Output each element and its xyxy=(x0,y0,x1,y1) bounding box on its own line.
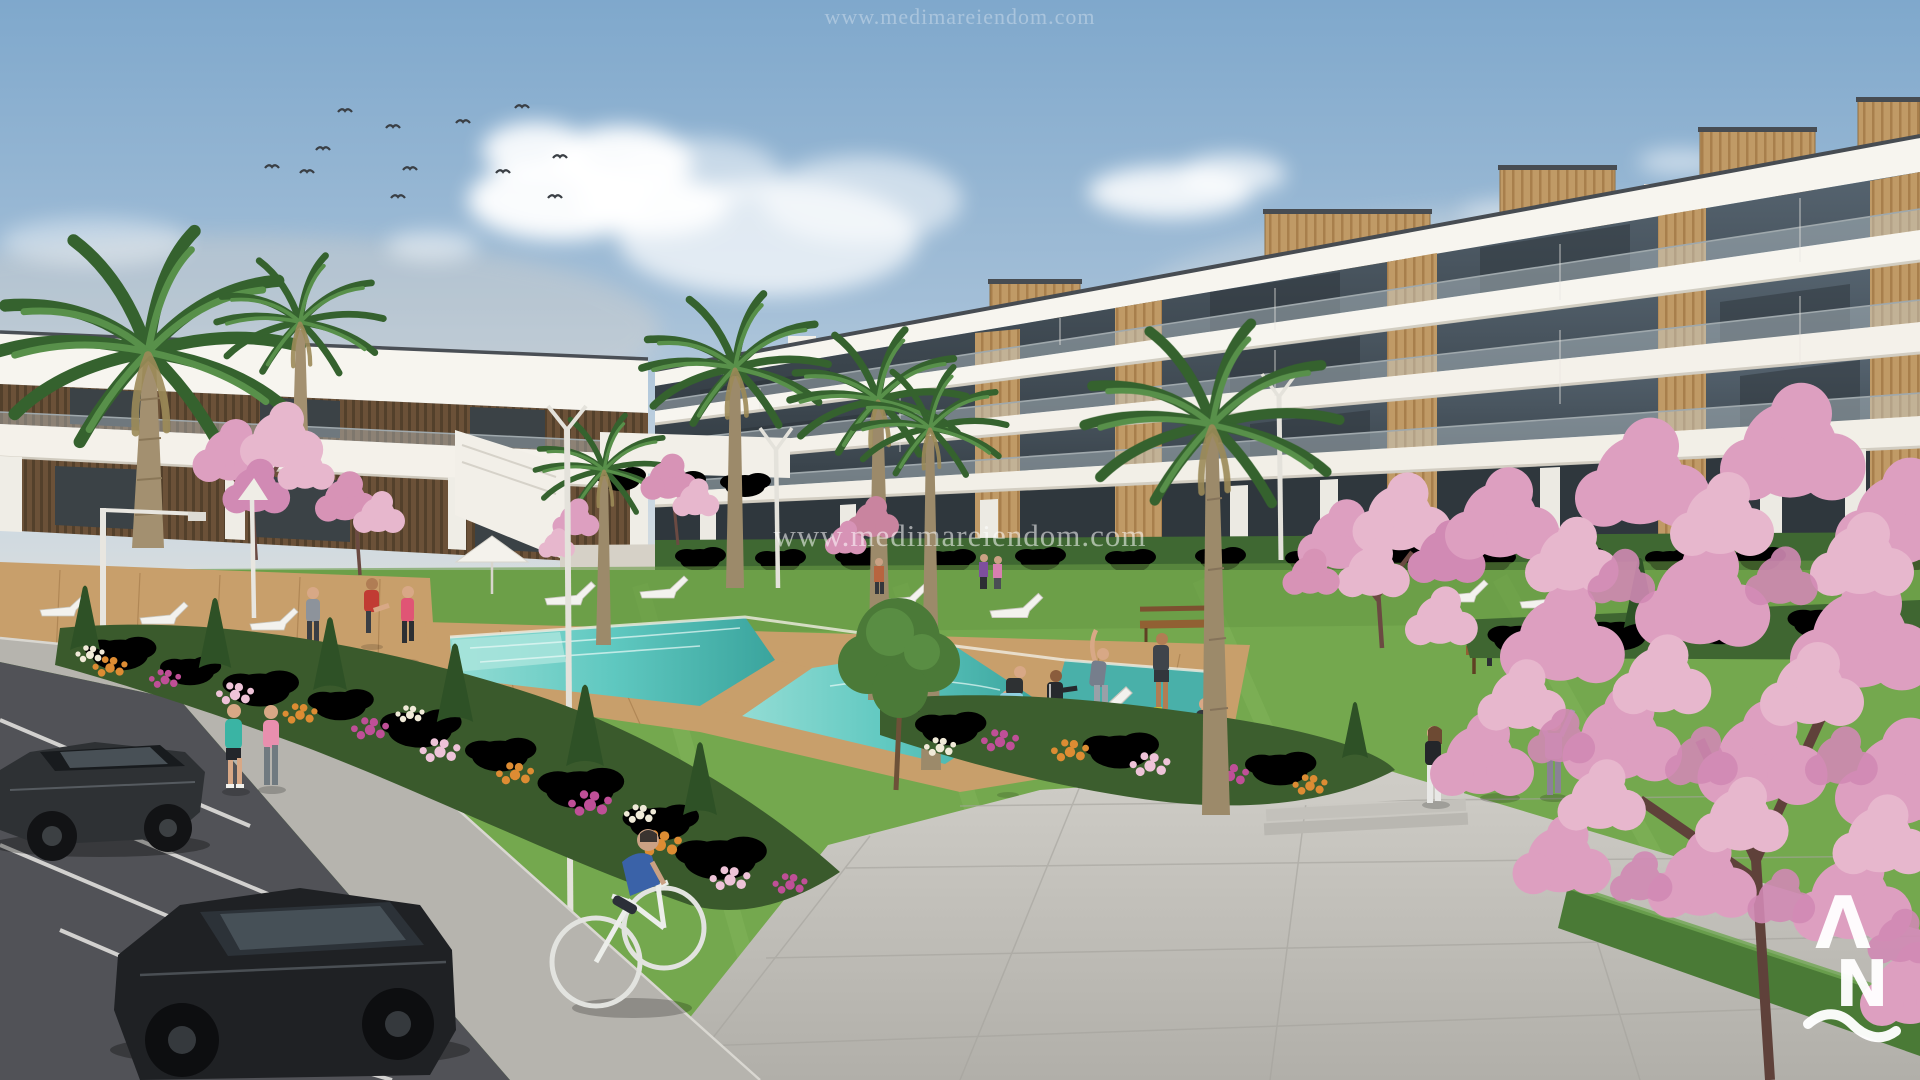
property-render: Λ N www.medimareiendom.com www.medimarei… xyxy=(0,0,1920,1080)
logo-letter-n: N xyxy=(1835,948,1889,1022)
pedestrian xyxy=(874,558,884,594)
render-scene: Λ N xyxy=(0,0,1920,1080)
car-sedan xyxy=(0,742,210,861)
